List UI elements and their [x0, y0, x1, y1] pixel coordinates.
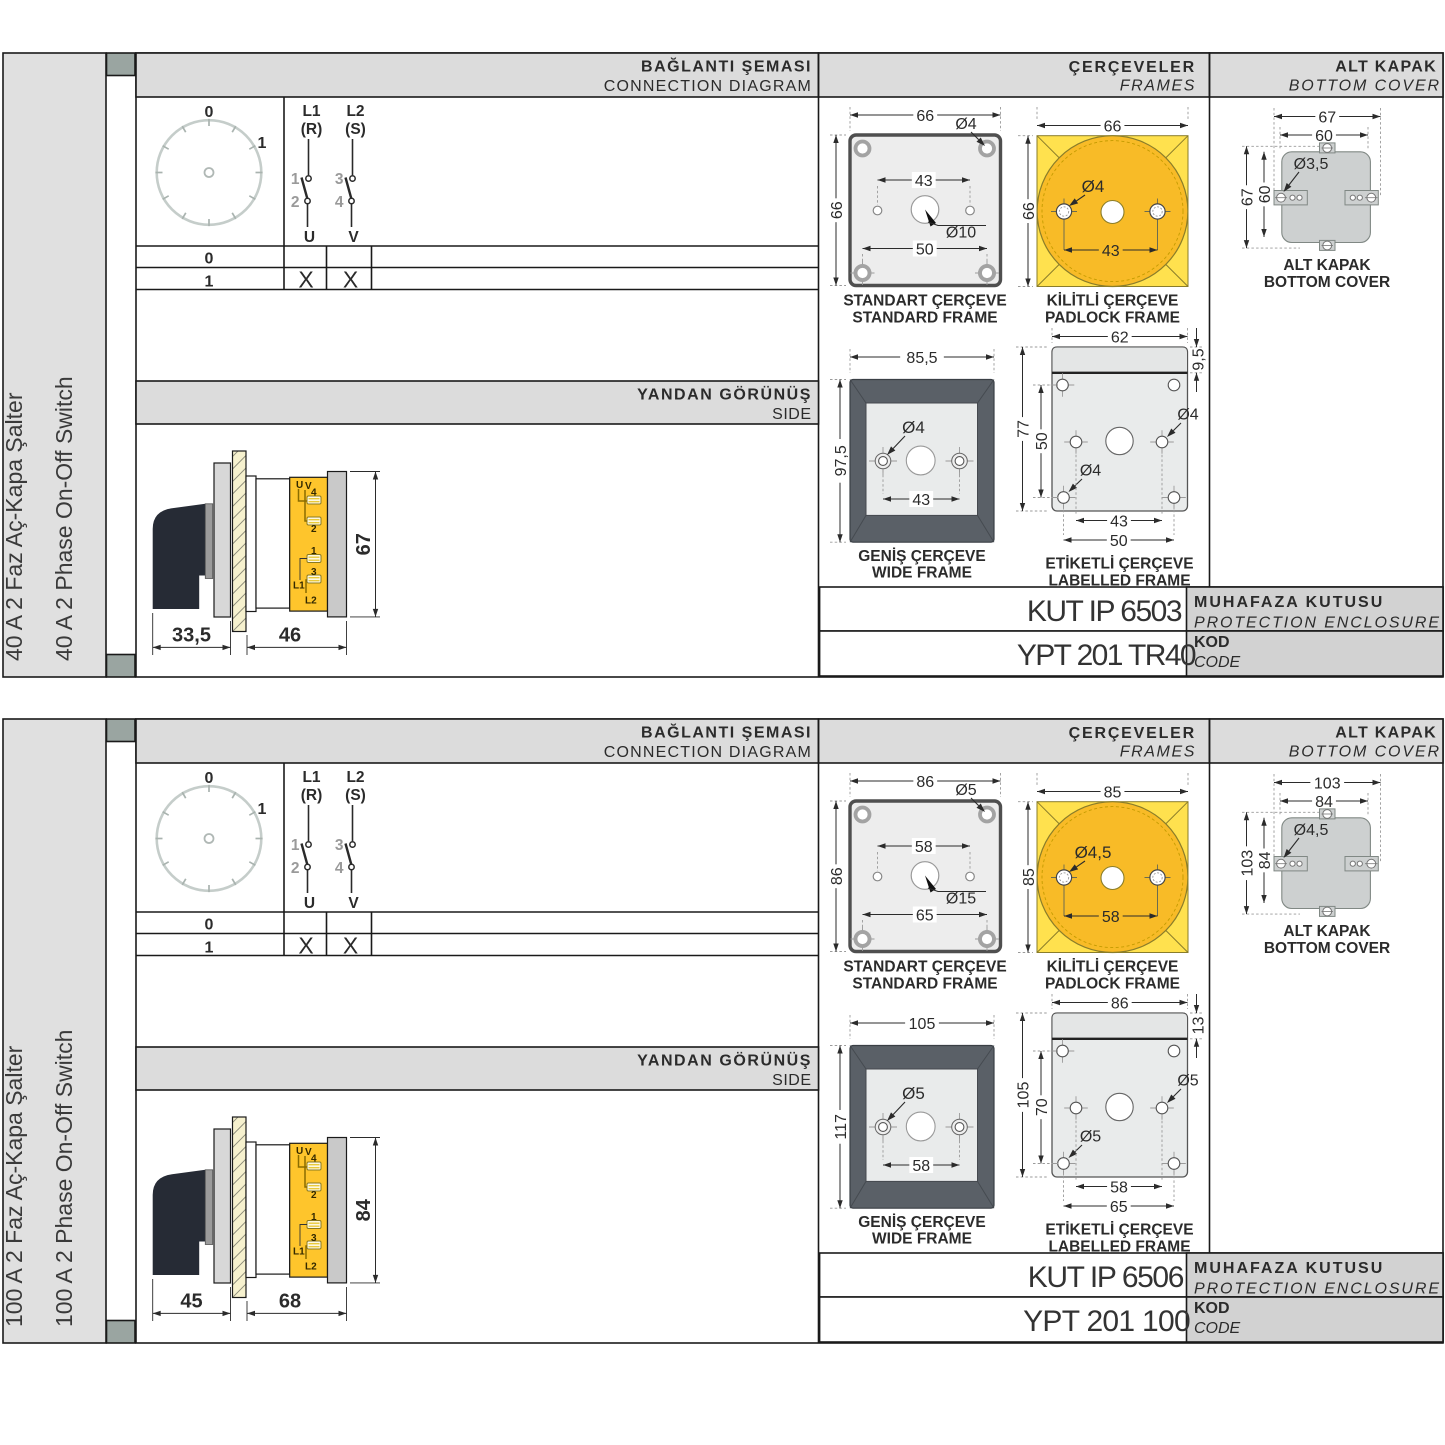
svg-text:CODE: CODE: [1194, 654, 1241, 671]
svg-text:YANDAN GÖRÜNÜŞ: YANDAN GÖRÜNÜŞ: [637, 1051, 812, 1070]
svg-text:1: 1: [311, 1212, 317, 1223]
svg-text:YPT 201 TR40: YPT 201 TR40: [1017, 639, 1196, 672]
svg-text:67: 67: [353, 533, 375, 555]
svg-text:Ø4: Ø4: [1080, 463, 1101, 480]
svg-text:3: 3: [335, 837, 344, 854]
svg-text:(R): (R): [301, 121, 323, 138]
svg-text:62: 62: [1111, 329, 1129, 346]
svg-text:GENİŞ ÇERÇEVE: GENİŞ ÇERÇEVE: [858, 548, 985, 565]
svg-text:STANDARD FRAME: STANDARD FRAME: [852, 310, 997, 327]
svg-text:Ø4: Ø4: [902, 418, 925, 437]
svg-text:CONNECTION DIAGRAM: CONNECTION DIAGRAM: [604, 78, 812, 95]
svg-text:50: 50: [1110, 533, 1128, 550]
svg-text:V: V: [348, 229, 359, 246]
svg-text:0: 0: [205, 251, 214, 268]
svg-text:ETİKETLİ ÇERÇEVE: ETİKETLİ ÇERÇEVE: [1045, 556, 1193, 573]
svg-text:Ø5: Ø5: [1177, 1073, 1198, 1090]
svg-text:45: 45: [180, 1291, 202, 1313]
svg-text:70: 70: [1034, 1098, 1051, 1116]
svg-text:BAĞLANTI ŞEMASI: BAĞLANTI ŞEMASI: [641, 723, 812, 742]
svg-text:MUHAFAZA KUTUSU: MUHAFAZA KUTUSU: [1194, 1260, 1384, 1277]
svg-text:BOTTOM COVER: BOTTOM COVER: [1289, 744, 1441, 761]
svg-text:Ø4: Ø4: [1177, 407, 1198, 424]
svg-text:1: 1: [258, 135, 267, 152]
svg-text:PADLOCK FRAME: PADLOCK FRAME: [1045, 310, 1180, 327]
svg-text:1: 1: [291, 171, 300, 188]
svg-text:85,5: 85,5: [906, 350, 937, 367]
svg-text:U: U: [304, 229, 315, 246]
svg-text:CODE: CODE: [1194, 1320, 1241, 1337]
svg-text:U: U: [304, 895, 315, 912]
svg-text:77: 77: [1015, 420, 1032, 438]
svg-text:PROTECTION ENCLOSURE: PROTECTION ENCLOSURE: [1194, 1281, 1441, 1298]
svg-text:66: 66: [1021, 202, 1038, 220]
svg-text:L2: L2: [305, 596, 317, 607]
svg-text:GENİŞ ÇERÇEVE: GENİŞ ÇERÇEVE: [858, 1214, 985, 1231]
svg-text:3: 3: [335, 171, 344, 188]
svg-text:X: X: [298, 267, 313, 293]
svg-text:4: 4: [335, 194, 344, 211]
svg-text:BOTTOM COVER: BOTTOM COVER: [1264, 274, 1390, 291]
svg-text:STANDARD FRAME: STANDARD FRAME: [852, 976, 997, 993]
svg-text:CONNECTION DIAGRAM: CONNECTION DIAGRAM: [604, 744, 812, 761]
svg-text:ALT KAPAK: ALT KAPAK: [1283, 923, 1371, 940]
svg-text:105: 105: [909, 1016, 936, 1033]
svg-text:58: 58: [1102, 909, 1120, 926]
svg-text:Ø4: Ø4: [955, 116, 976, 133]
svg-text:58: 58: [912, 1158, 930, 1175]
svg-text:ALT KAPAK: ALT KAPAK: [1335, 725, 1437, 742]
svg-text:1: 1: [205, 273, 214, 290]
svg-text:PADLOCK FRAME: PADLOCK FRAME: [1045, 976, 1180, 993]
svg-text:85: 85: [1021, 868, 1038, 886]
svg-text:50: 50: [1034, 432, 1051, 450]
svg-text:58: 58: [915, 839, 933, 856]
svg-text:84: 84: [353, 1198, 375, 1221]
svg-text:60: 60: [1257, 185, 1274, 203]
svg-text:66: 66: [829, 201, 846, 219]
svg-text:66: 66: [1104, 118, 1122, 135]
svg-text:1: 1: [205, 939, 214, 956]
svg-text:2: 2: [291, 860, 300, 877]
svg-text:66: 66: [916, 108, 934, 125]
svg-text:BOTTOM COVER: BOTTOM COVER: [1289, 78, 1441, 95]
svg-text:86: 86: [829, 867, 846, 885]
svg-text:58: 58: [1110, 1179, 1128, 1196]
svg-text:SIDE: SIDE: [772, 406, 811, 423]
svg-text:60: 60: [1315, 128, 1333, 145]
svg-text:40 A 2 Phase On-Off Switch: 40 A 2 Phase On-Off Switch: [51, 376, 77, 661]
svg-text:117: 117: [833, 1114, 850, 1140]
svg-text:1: 1: [311, 546, 317, 557]
svg-text:40 A 2 Faz Aç-Kapa Şalter: 40 A 2 Faz Aç-Kapa Şalter: [1, 392, 27, 661]
svg-text:KUT IP 6506: KUT IP 6506: [1028, 1261, 1184, 1294]
svg-text:1: 1: [258, 801, 267, 818]
svg-text:PROTECTION ENCLOSURE: PROTECTION ENCLOSURE: [1194, 615, 1441, 632]
svg-text:V: V: [348, 895, 359, 912]
svg-text:100 A 2 Faz Aç-Kapa Şalter: 100 A 2 Faz Aç-Kapa Şalter: [1, 1045, 27, 1327]
svg-text:85: 85: [1104, 784, 1122, 801]
svg-text:Ø15: Ø15: [946, 891, 976, 908]
svg-text:WIDE FRAME: WIDE FRAME: [872, 565, 972, 582]
svg-text:103: 103: [1239, 850, 1256, 877]
svg-text:Ø5: Ø5: [955, 782, 976, 799]
svg-text:Ø4: Ø4: [1082, 177, 1105, 196]
svg-text:X: X: [343, 267, 358, 293]
svg-text:84: 84: [1257, 851, 1274, 869]
svg-text:97,5: 97,5: [833, 445, 850, 476]
svg-text:0: 0: [205, 770, 214, 787]
svg-text:L1: L1: [293, 1247, 305, 1258]
svg-text:ETİKETLİ ÇERÇEVE: ETİKETLİ ÇERÇEVE: [1045, 1222, 1193, 1239]
svg-text:86: 86: [1111, 995, 1129, 1012]
svg-text:L1: L1: [293, 581, 305, 592]
svg-text:WIDE FRAME: WIDE FRAME: [872, 1231, 972, 1248]
svg-text:43: 43: [912, 492, 930, 509]
svg-text:67: 67: [1318, 109, 1336, 126]
svg-text:2: 2: [291, 194, 300, 211]
svg-text:FRAMES: FRAMES: [1120, 744, 1196, 761]
svg-text:43: 43: [1110, 513, 1128, 530]
svg-text:100 A 2 Phase On-Off Switch: 100 A 2 Phase On-Off Switch: [51, 1030, 77, 1327]
svg-text:SIDE: SIDE: [772, 1072, 811, 1089]
svg-text:2: 2: [311, 1190, 317, 1201]
svg-text:65: 65: [1110, 1199, 1128, 1216]
svg-text:BOTTOM COVER: BOTTOM COVER: [1264, 940, 1390, 957]
svg-text:FRAMES: FRAMES: [1120, 78, 1196, 95]
svg-text:43: 43: [915, 173, 933, 190]
svg-text:84: 84: [1315, 794, 1333, 811]
svg-text:3: 3: [311, 567, 317, 578]
svg-text:YPT 201 100: YPT 201 100: [1023, 1305, 1190, 1338]
svg-text:50: 50: [916, 241, 934, 258]
svg-text:L2: L2: [305, 1262, 317, 1273]
svg-text:L2: L2: [346, 769, 364, 786]
svg-text:U: U: [296, 480, 303, 491]
svg-text:105: 105: [1015, 1082, 1032, 1109]
svg-text:BAĞLANTI ŞEMASI: BAĞLANTI ŞEMASI: [641, 57, 812, 76]
svg-text:4: 4: [311, 1154, 317, 1165]
svg-text:Ø5: Ø5: [902, 1084, 925, 1103]
svg-text:STANDART ÇERÇEVE: STANDART ÇERÇEVE: [843, 959, 1006, 976]
svg-text:33,5: 33,5: [172, 625, 211, 647]
svg-text:Ø4,5: Ø4,5: [1075, 843, 1112, 862]
svg-text:Ø10: Ø10: [946, 225, 976, 242]
svg-text:MUHAFAZA KUTUSU: MUHAFAZA KUTUSU: [1194, 594, 1384, 611]
svg-text:0: 0: [205, 917, 214, 934]
svg-text:4: 4: [335, 860, 344, 877]
svg-text:KOD: KOD: [1194, 634, 1230, 651]
svg-text:KİLİTLİ ÇERÇEVE: KİLİTLİ ÇERÇEVE: [1047, 293, 1179, 310]
svg-text:Ø3,5: Ø3,5: [1294, 156, 1329, 173]
svg-text:0: 0: [205, 104, 214, 121]
svg-text:L2: L2: [346, 103, 364, 120]
svg-text:L1: L1: [302, 769, 320, 786]
svg-text:ALT KAPAK: ALT KAPAK: [1283, 257, 1371, 274]
svg-text:X: X: [343, 933, 358, 959]
svg-text:Ø4,5: Ø4,5: [1294, 822, 1329, 839]
svg-text:(R): (R): [301, 787, 323, 804]
svg-text:67: 67: [1239, 188, 1256, 206]
svg-text:(S): (S): [345, 787, 366, 804]
svg-text:KUT IP 6503: KUT IP 6503: [1027, 595, 1182, 628]
svg-text:46: 46: [279, 625, 301, 647]
svg-text:2: 2: [311, 524, 317, 535]
svg-text:Ø5: Ø5: [1080, 1129, 1101, 1146]
svg-text:ÇERÇEVELER: ÇERÇEVELER: [1069, 725, 1196, 742]
svg-text:103: 103: [1314, 775, 1341, 792]
svg-text:L1: L1: [302, 103, 320, 120]
svg-text:43: 43: [1102, 243, 1120, 260]
svg-text:ÇERÇEVELER: ÇERÇEVELER: [1069, 59, 1196, 76]
svg-text:KİLİTLİ ÇERÇEVE: KİLİTLİ ÇERÇEVE: [1047, 959, 1179, 976]
svg-text:U: U: [296, 1146, 303, 1157]
svg-text:4: 4: [311, 488, 317, 499]
svg-text:86: 86: [916, 774, 934, 791]
svg-text:YANDAN GÖRÜNÜŞ: YANDAN GÖRÜNÜŞ: [637, 385, 812, 404]
svg-text:3: 3: [311, 1233, 317, 1244]
svg-text:X: X: [298, 933, 313, 959]
svg-text:ALT KAPAK: ALT KAPAK: [1335, 59, 1437, 76]
svg-text:KOD: KOD: [1194, 1300, 1230, 1317]
svg-text:13: 13: [1191, 1017, 1208, 1035]
svg-text:9,5: 9,5: [1191, 348, 1208, 370]
svg-text:(S): (S): [345, 121, 366, 138]
svg-text:65: 65: [916, 907, 934, 924]
svg-text:1: 1: [291, 837, 300, 854]
svg-text:STANDART ÇERÇEVE: STANDART ÇERÇEVE: [843, 293, 1006, 310]
svg-text:68: 68: [279, 1291, 301, 1313]
